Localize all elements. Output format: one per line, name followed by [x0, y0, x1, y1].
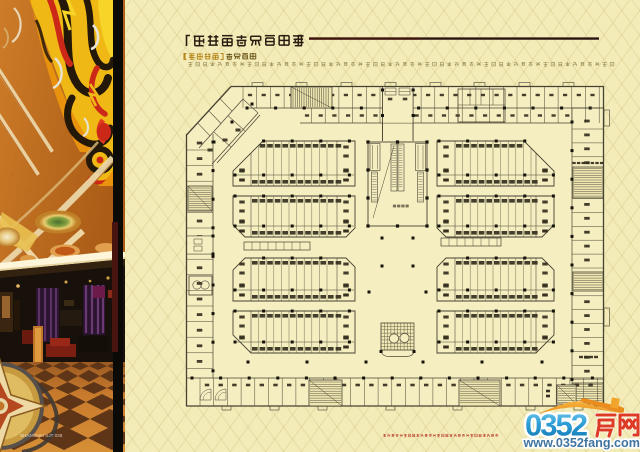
- svg-text:www.0352fang.com: www.0352fang.com: [523, 436, 640, 450]
